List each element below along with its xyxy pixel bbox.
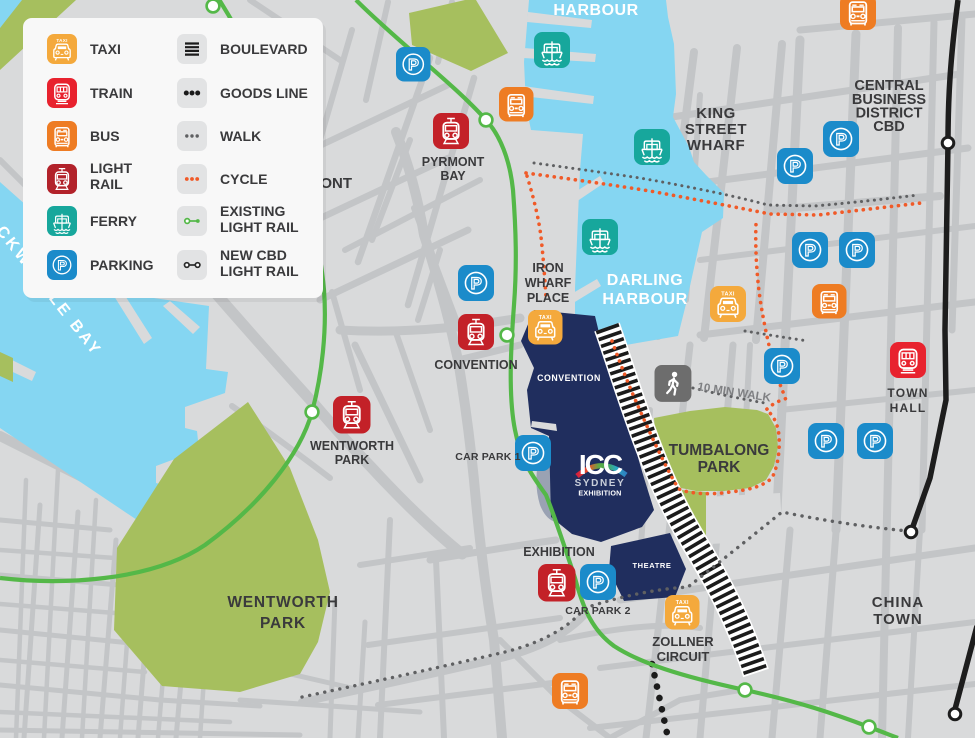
svg-text:FERRY: FERRY bbox=[90, 213, 138, 229]
svg-text:EXHIBITION: EXHIBITION bbox=[578, 489, 621, 498]
svg-text:PYRMONT: PYRMONT bbox=[422, 155, 485, 169]
svg-text:WALK: WALK bbox=[220, 128, 261, 144]
svg-text:LIGHT: LIGHT bbox=[90, 160, 132, 176]
svg-text:KING: KING bbox=[696, 105, 736, 122]
svg-text:BAY: BAY bbox=[440, 169, 466, 183]
svg-text:CHINA: CHINA bbox=[872, 594, 925, 611]
svg-text:THEATRE: THEATRE bbox=[632, 561, 671, 570]
svg-text:TOWN: TOWN bbox=[873, 611, 923, 628]
svg-text:PARK: PARK bbox=[335, 453, 370, 467]
svg-text:WHARF: WHARF bbox=[687, 137, 745, 154]
svg-text:DARLING: DARLING bbox=[607, 272, 683, 289]
svg-text:TRAIN: TRAIN bbox=[90, 85, 133, 101]
svg-text:CIRCUIT: CIRCUIT bbox=[657, 649, 710, 664]
svg-text:HARBOUR: HARBOUR bbox=[553, 2, 638, 19]
svg-text:BOULEVARD: BOULEVARD bbox=[220, 41, 308, 57]
svg-text:CONVENTION: CONVENTION bbox=[537, 373, 601, 383]
svg-text:HALL: HALL bbox=[890, 401, 927, 415]
svg-text:CAR PARK 2: CAR PARK 2 bbox=[565, 605, 630, 617]
svg-text:CBD: CBD bbox=[873, 119, 904, 135]
svg-text:SYDNEY: SYDNEY bbox=[575, 478, 626, 489]
svg-text:GOODS LINE: GOODS LINE bbox=[220, 85, 308, 101]
svg-text:LIGHT RAIL: LIGHT RAIL bbox=[220, 219, 299, 235]
svg-text:PARKING: PARKING bbox=[90, 257, 154, 273]
svg-text:CYCLE: CYCLE bbox=[220, 171, 267, 187]
svg-text:EXHIBITION: EXHIBITION bbox=[523, 545, 595, 559]
svg-text:NEW CBD: NEW CBD bbox=[220, 247, 287, 263]
svg-text:TAXI: TAXI bbox=[90, 41, 121, 57]
svg-text:WHARF: WHARF bbox=[525, 276, 572, 290]
svg-text:RAIL: RAIL bbox=[90, 176, 123, 192]
svg-text:PLACE: PLACE bbox=[527, 291, 569, 305]
svg-text:PARK: PARK bbox=[698, 459, 742, 476]
svg-text:CAR PARK 1: CAR PARK 1 bbox=[455, 451, 520, 463]
svg-text:TUMBALONG: TUMBALONG bbox=[669, 442, 770, 459]
svg-text:WENTWORTH: WENTWORTH bbox=[310, 439, 394, 453]
svg-text:ZOLLNER: ZOLLNER bbox=[652, 634, 714, 649]
svg-text:LIGHT RAIL: LIGHT RAIL bbox=[220, 263, 299, 279]
svg-text:BUS: BUS bbox=[90, 128, 120, 144]
svg-text:TOWN: TOWN bbox=[887, 386, 928, 400]
svg-text:WENTWORTH: WENTWORTH bbox=[227, 594, 338, 611]
svg-text:ICC: ICC bbox=[579, 449, 623, 480]
svg-text:STREET: STREET bbox=[685, 121, 747, 138]
svg-text:EXISTING: EXISTING bbox=[220, 203, 285, 219]
svg-text:PARK: PARK bbox=[260, 615, 306, 632]
svg-text:HARBOUR: HARBOUR bbox=[602, 291, 687, 308]
svg-text:IRON: IRON bbox=[532, 261, 563, 275]
svg-text:CONVENTION: CONVENTION bbox=[434, 358, 517, 372]
